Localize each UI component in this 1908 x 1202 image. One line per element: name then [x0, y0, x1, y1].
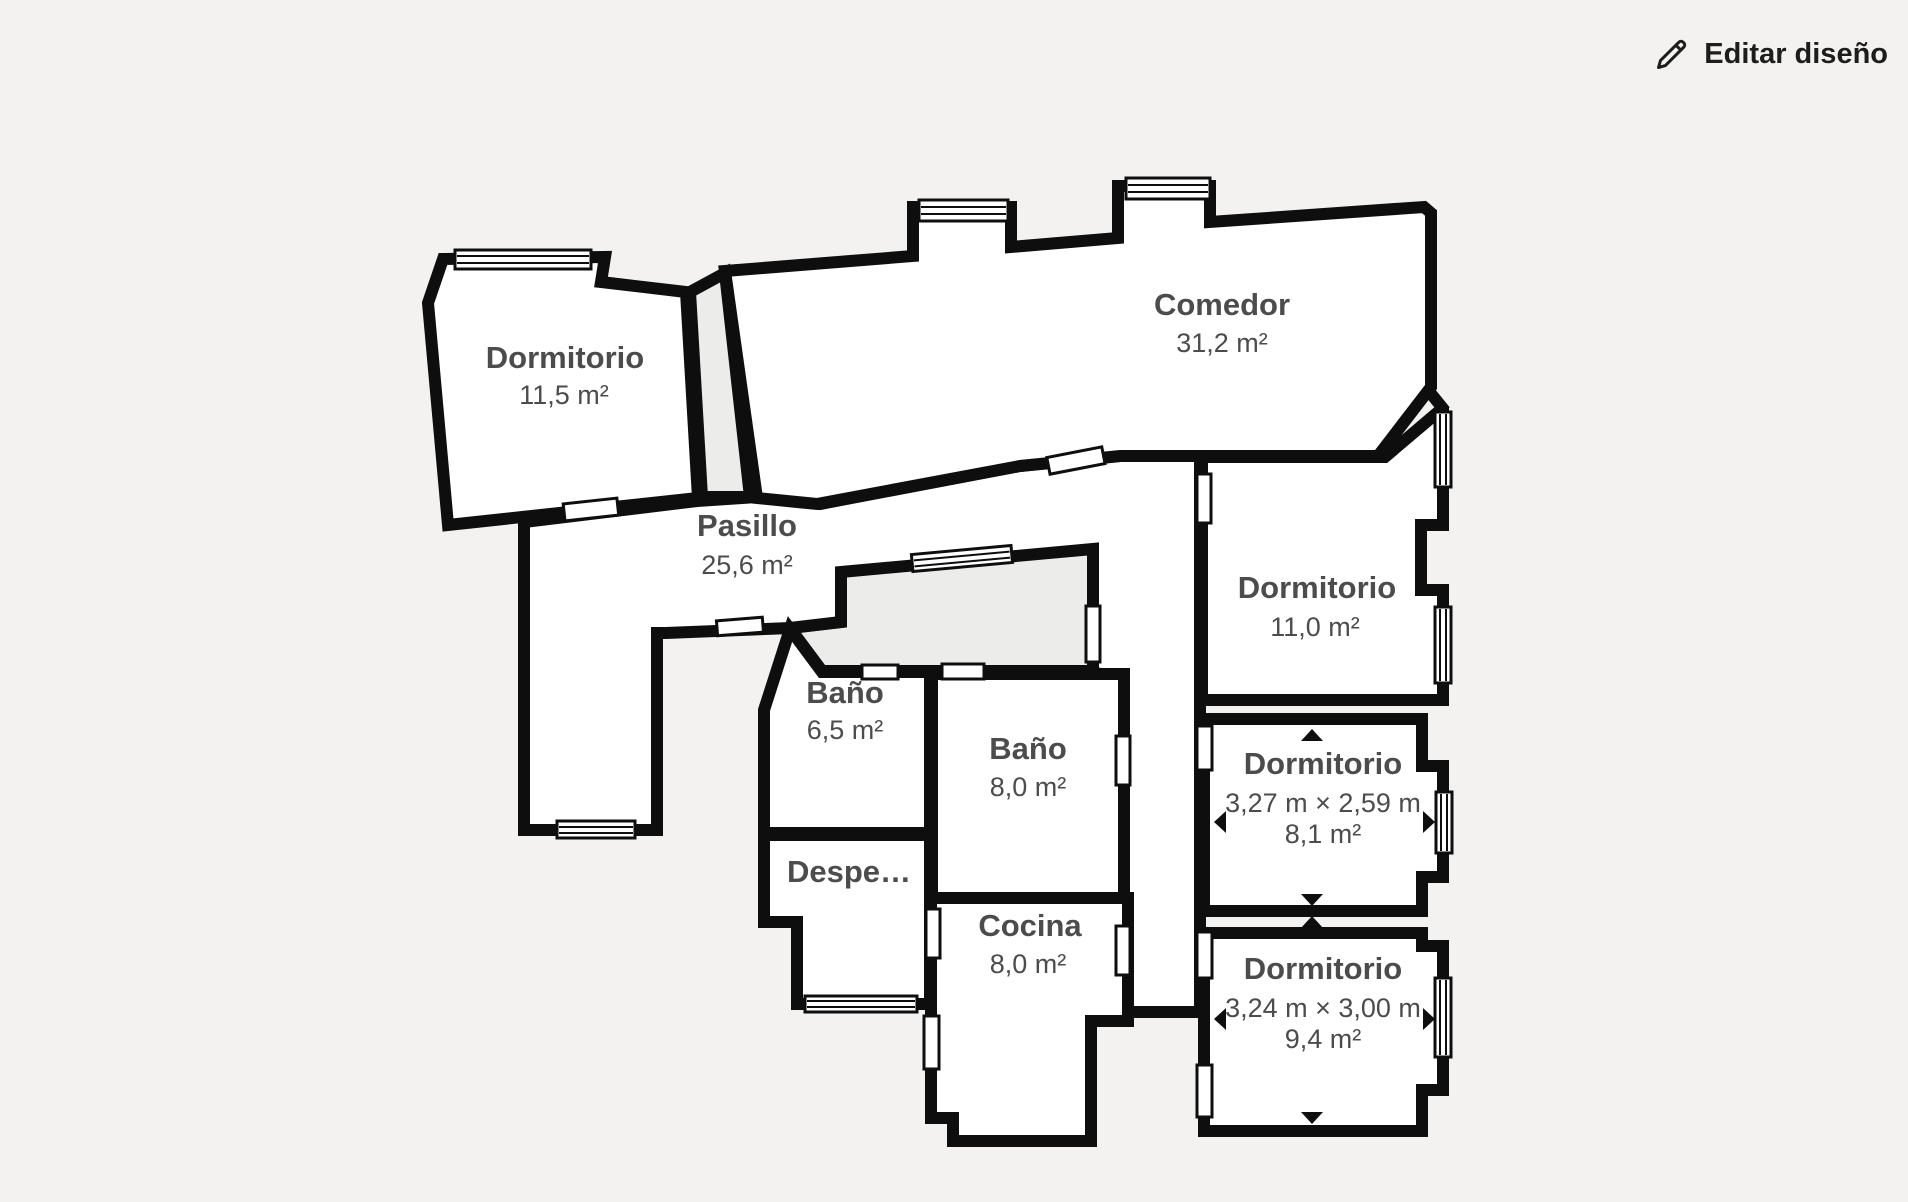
- room-area-dormitorio-bottom: 9,4 m²: [1285, 1024, 1362, 1054]
- door-dormitorio-bottom: [1197, 932, 1212, 978]
- room-label-dormitorio-mid: Dormitorio: [1244, 746, 1402, 781]
- window-dormitorio-bottom: [1435, 978, 1451, 1057]
- door-dormitorio-mid: [1197, 726, 1212, 770]
- floorplan-svg: Dormitorio 11,5 m² Comedor 31,2 m² Pasil…: [0, 0, 1908, 1202]
- room-area-cocina: 8,0 m²: [990, 949, 1067, 979]
- room-area-pasillo: 25,6 m²: [701, 550, 793, 580]
- edit-design-label: Editar diseño: [1704, 38, 1888, 71]
- window-dormitorio-right-lower: [1435, 607, 1451, 683]
- room-label-dormitorio-bottom: Dormitorio: [1244, 951, 1402, 986]
- door-despensa-cocina: [926, 909, 940, 958]
- room-label-pasillo: Pasillo: [697, 508, 797, 543]
- room-label-bano-large: Baño: [989, 731, 1067, 766]
- room-dims-dormitorio-bottom: 3,24 m × 3,00 m: [1225, 993, 1421, 1023]
- window-comedor-right: [1126, 178, 1210, 199]
- room-area-bano-large: 8,0 m²: [990, 772, 1067, 802]
- floorplan-canvas: Dormitorio 11,5 m² Comedor 31,2 m² Pasil…: [0, 0, 1908, 1202]
- dim-arrow-up: [1301, 916, 1323, 928]
- room-area-dormitorio-top-left: 11,5 m²: [519, 380, 609, 410]
- room-dormitorio-right: [1202, 412, 1443, 700]
- window-despensa-bottom: [805, 996, 917, 1012]
- window-dormitorio-top-left: [455, 250, 591, 269]
- door-dormitorio-right: [1197, 474, 1211, 523]
- room-area-dormitorio-right: 11,0 m²: [1270, 612, 1360, 642]
- room-area-bano-small: 6,5 m²: [807, 715, 884, 745]
- room-label-cocina: Cocina: [978, 908, 1082, 943]
- room-label-despensa: Despe…: [787, 854, 911, 889]
- window-dormitorio-right-upper: [1435, 412, 1451, 487]
- room-area-dormitorio-mid: 8,1 m²: [1285, 819, 1362, 849]
- room-label-bano-small: Baño: [806, 675, 884, 710]
- window-pasillo-bottom: [557, 821, 635, 838]
- pencil-icon: [1654, 36, 1690, 72]
- edit-design-button[interactable]: Editar diseño: [1650, 30, 1892, 78]
- room-label-comedor: Comedor: [1154, 287, 1290, 322]
- wall-stub: [1428, 390, 1445, 411]
- room-area-comedor: 31,2 m²: [1176, 328, 1268, 358]
- door-bano-large-side: [1116, 736, 1130, 785]
- window-dormitorio-bottom-left: [1197, 1065, 1212, 1117]
- room-dormitorio-right-walls: [1202, 412, 1443, 700]
- room-label-dormitorio-top-left: Dormitorio: [486, 340, 644, 375]
- window-patio-right: [1086, 606, 1100, 662]
- window-dormitorio-mid: [1436, 792, 1452, 853]
- door-cocina-side: [1116, 926, 1130, 975]
- room-dims-dormitorio-mid: 3,27 m × 2,59 m: [1225, 788, 1421, 818]
- window-pasillo-court: [716, 617, 763, 636]
- window-cocina-left: [924, 1016, 939, 1069]
- door-bano-large-top: [942, 664, 984, 679]
- room-label-dormitorio-right: Dormitorio: [1238, 570, 1396, 605]
- window-comedor-left: [919, 200, 1008, 221]
